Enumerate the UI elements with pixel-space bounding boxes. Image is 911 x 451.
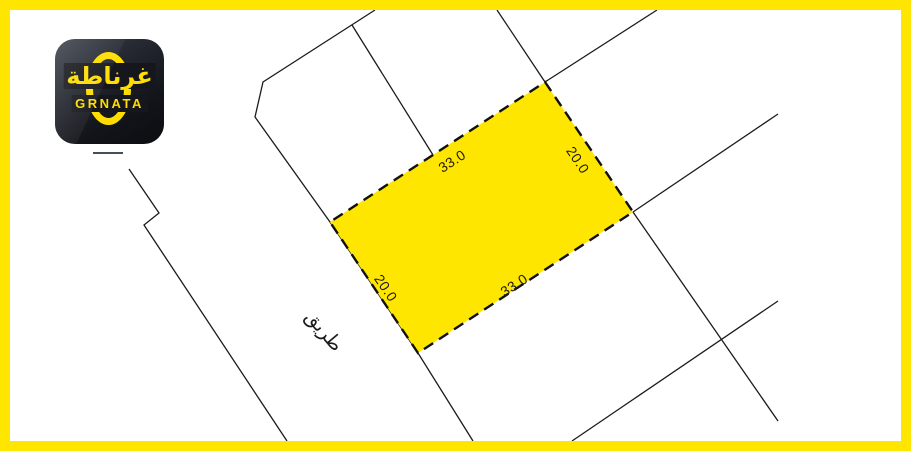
neighbor-boundary-line-nw <box>352 25 433 155</box>
road-left-edge-line <box>129 169 287 441</box>
neighbor-boundary-line-east-upper <box>633 114 778 212</box>
grnata-logo: غرناطة GRNATA <box>55 39 164 144</box>
road-name-label: طريق <box>301 306 348 356</box>
neighbor-boundary-line-north-right <box>545 10 657 82</box>
neighbor-boundary-line-southeast <box>572 301 778 441</box>
highlighted-plot <box>330 82 633 353</box>
logo-arabic-text: غرناطة <box>63 63 156 89</box>
neighbor-boundary-line-north-left <box>497 10 545 82</box>
logo-latin-text: GRNATA <box>71 95 148 112</box>
land-plan-canvas: 33.0 20.0 33.0 20.0 طريق غرناطة GRNATA <box>0 0 911 451</box>
